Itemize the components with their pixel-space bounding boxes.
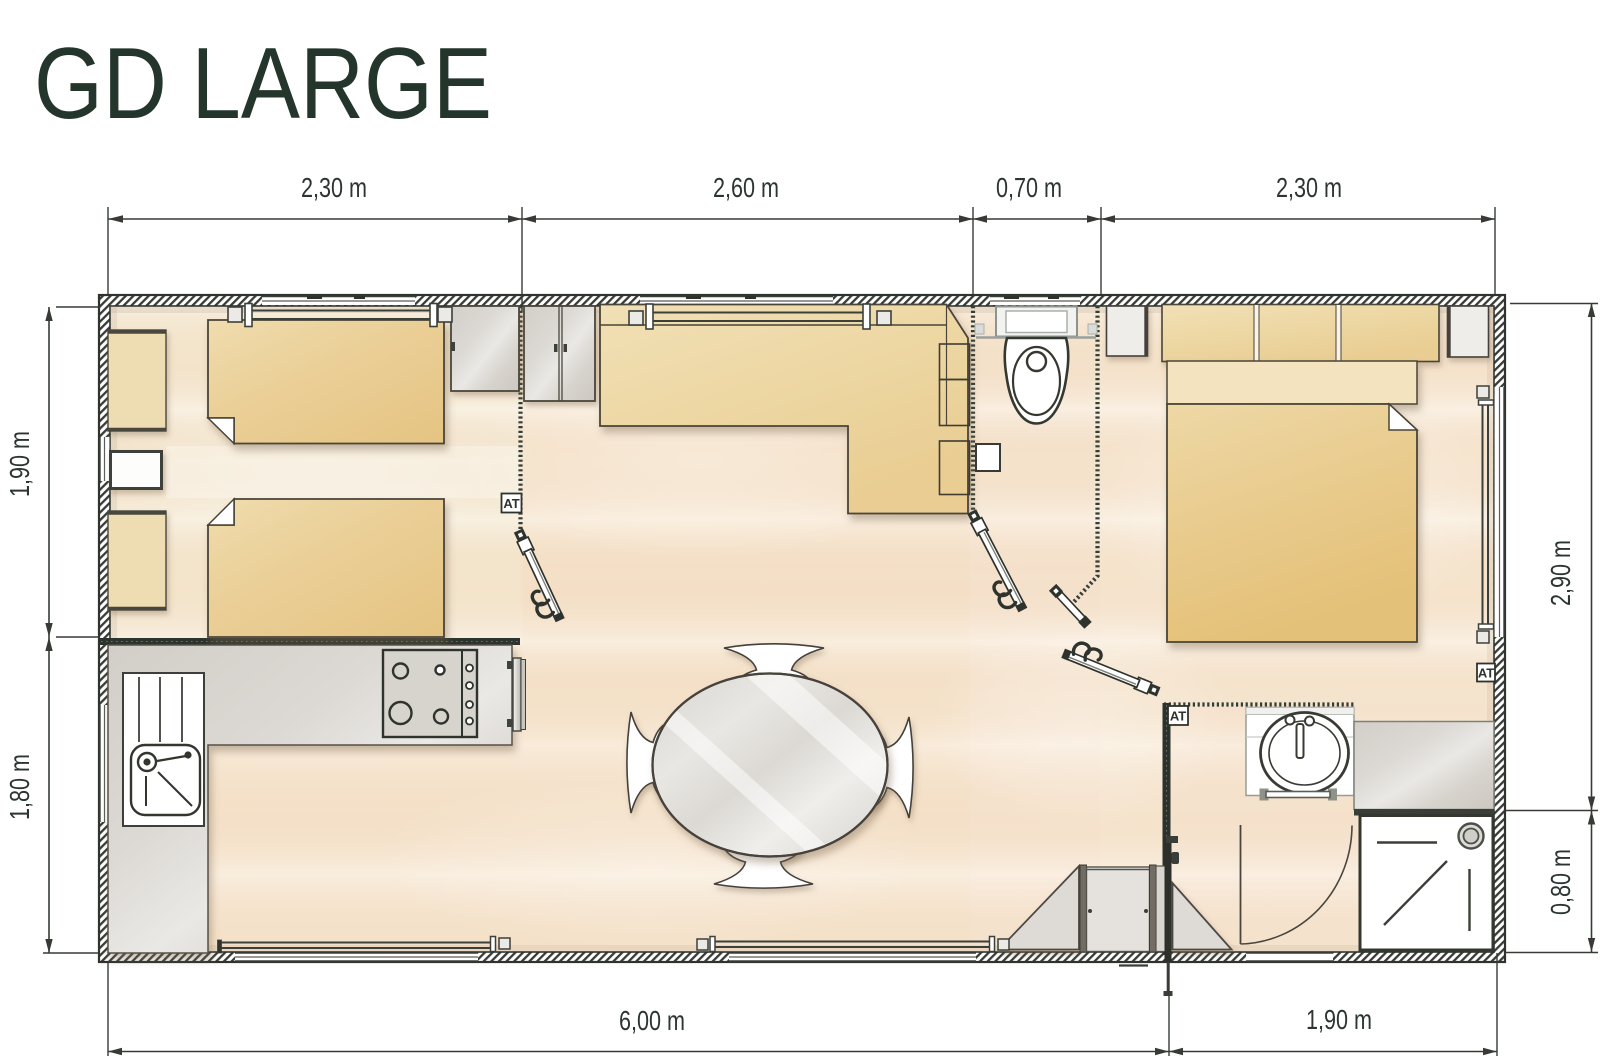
svg-text:2,60 m: 2,60 m xyxy=(713,172,779,203)
svg-text:6,00 m: 6,00 m xyxy=(619,1005,685,1036)
svg-text:0,80 m: 0,80 m xyxy=(1545,849,1576,915)
svg-text:AT: AT xyxy=(503,496,519,511)
svg-text:2,30 m: 2,30 m xyxy=(1276,172,1342,203)
svg-text:0,70 m: 0,70 m xyxy=(996,172,1062,203)
svg-text:AT: AT xyxy=(1170,709,1186,724)
svg-text:GD LARGE: GD LARGE xyxy=(34,28,492,140)
svg-text:2,30 m: 2,30 m xyxy=(301,172,367,203)
svg-text:1,80 m: 1,80 m xyxy=(4,754,35,820)
svg-text:1,90 m: 1,90 m xyxy=(1306,1004,1372,1035)
svg-text:2,90 m: 2,90 m xyxy=(1545,540,1576,606)
svg-text:AT: AT xyxy=(1478,666,1494,681)
svg-text:1,90 m: 1,90 m xyxy=(4,431,35,497)
